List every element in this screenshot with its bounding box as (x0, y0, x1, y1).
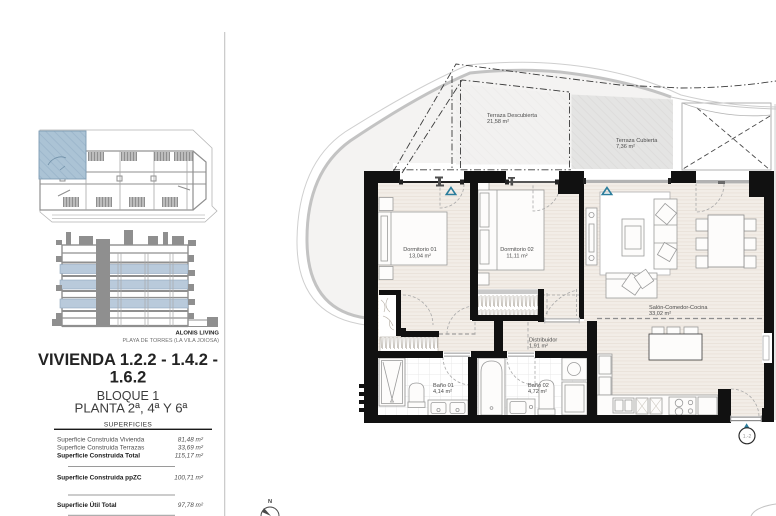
svg-text:100,71 m²: 100,71 m² (174, 475, 204, 482)
svg-text:SUPERFICIES: SUPERFICIES (104, 422, 153, 429)
svg-text:ALONIS LIVING: ALONIS LIVING (175, 331, 219, 337)
svg-text:1.6.2: 1.6.2 (110, 369, 147, 387)
svg-text:Superficie Construida Terrazas: Superficie Construida Terrazas (57, 445, 144, 452)
svg-text:Superficie Construida ppZC: Superficie Construida ppZC (57, 475, 142, 482)
svg-text:115,17 m²: 115,17 m² (175, 453, 204, 460)
svg-text:33,69 m²: 33,69 m² (178, 445, 204, 452)
svg-text:33,02 m²: 33,02 m² (649, 311, 671, 317)
svg-text:Superficie Construida Total: Superficie Construida Total (57, 453, 140, 460)
svg-text:97,78 m²: 97,78 m² (178, 502, 204, 509)
svg-text:1,91 m²: 1,91 m² (529, 344, 548, 350)
svg-text:VIVIENDA 1.2.2 - 1.4.2 -: VIVIENDA 1.2.2 - 1.4.2 - (38, 351, 218, 369)
svg-text:N: N (268, 499, 272, 505)
svg-text:21,58 m²: 21,58 m² (487, 119, 509, 125)
svg-text:81,48 m²: 81,48 m² (178, 437, 204, 444)
svg-text:13,04 m²: 13,04 m² (409, 254, 431, 260)
svg-text:Superficie Construida Vivienda: Superficie Construida Vivienda (57, 437, 145, 444)
svg-text:11,11 m²: 11,11 m² (506, 254, 527, 260)
svg-text:4,14 m²: 4,14 m² (433, 389, 452, 395)
svg-text:7,36 m²: 7,36 m² (616, 144, 635, 150)
svg-text:PLAYA DE TORRES (LA VILA JOIOS: PLAYA DE TORRES (LA VILA JOIOSA) (123, 338, 220, 344)
svg-text:Dormitorio 02: Dormitorio 02 (500, 247, 534, 253)
svg-text:4,72 m²: 4,72 m² (528, 389, 547, 395)
svg-text:Superficie Útil Total: Superficie Útil Total (57, 500, 117, 509)
svg-text:PLANTA 2ª, 4ª Y 6ª: PLANTA 2ª, 4ª Y 6ª (75, 401, 188, 416)
svg-text:Dormitorio 01: Dormitorio 01 (403, 247, 437, 253)
svg-text:1.-2: 1.-2 (743, 434, 752, 440)
